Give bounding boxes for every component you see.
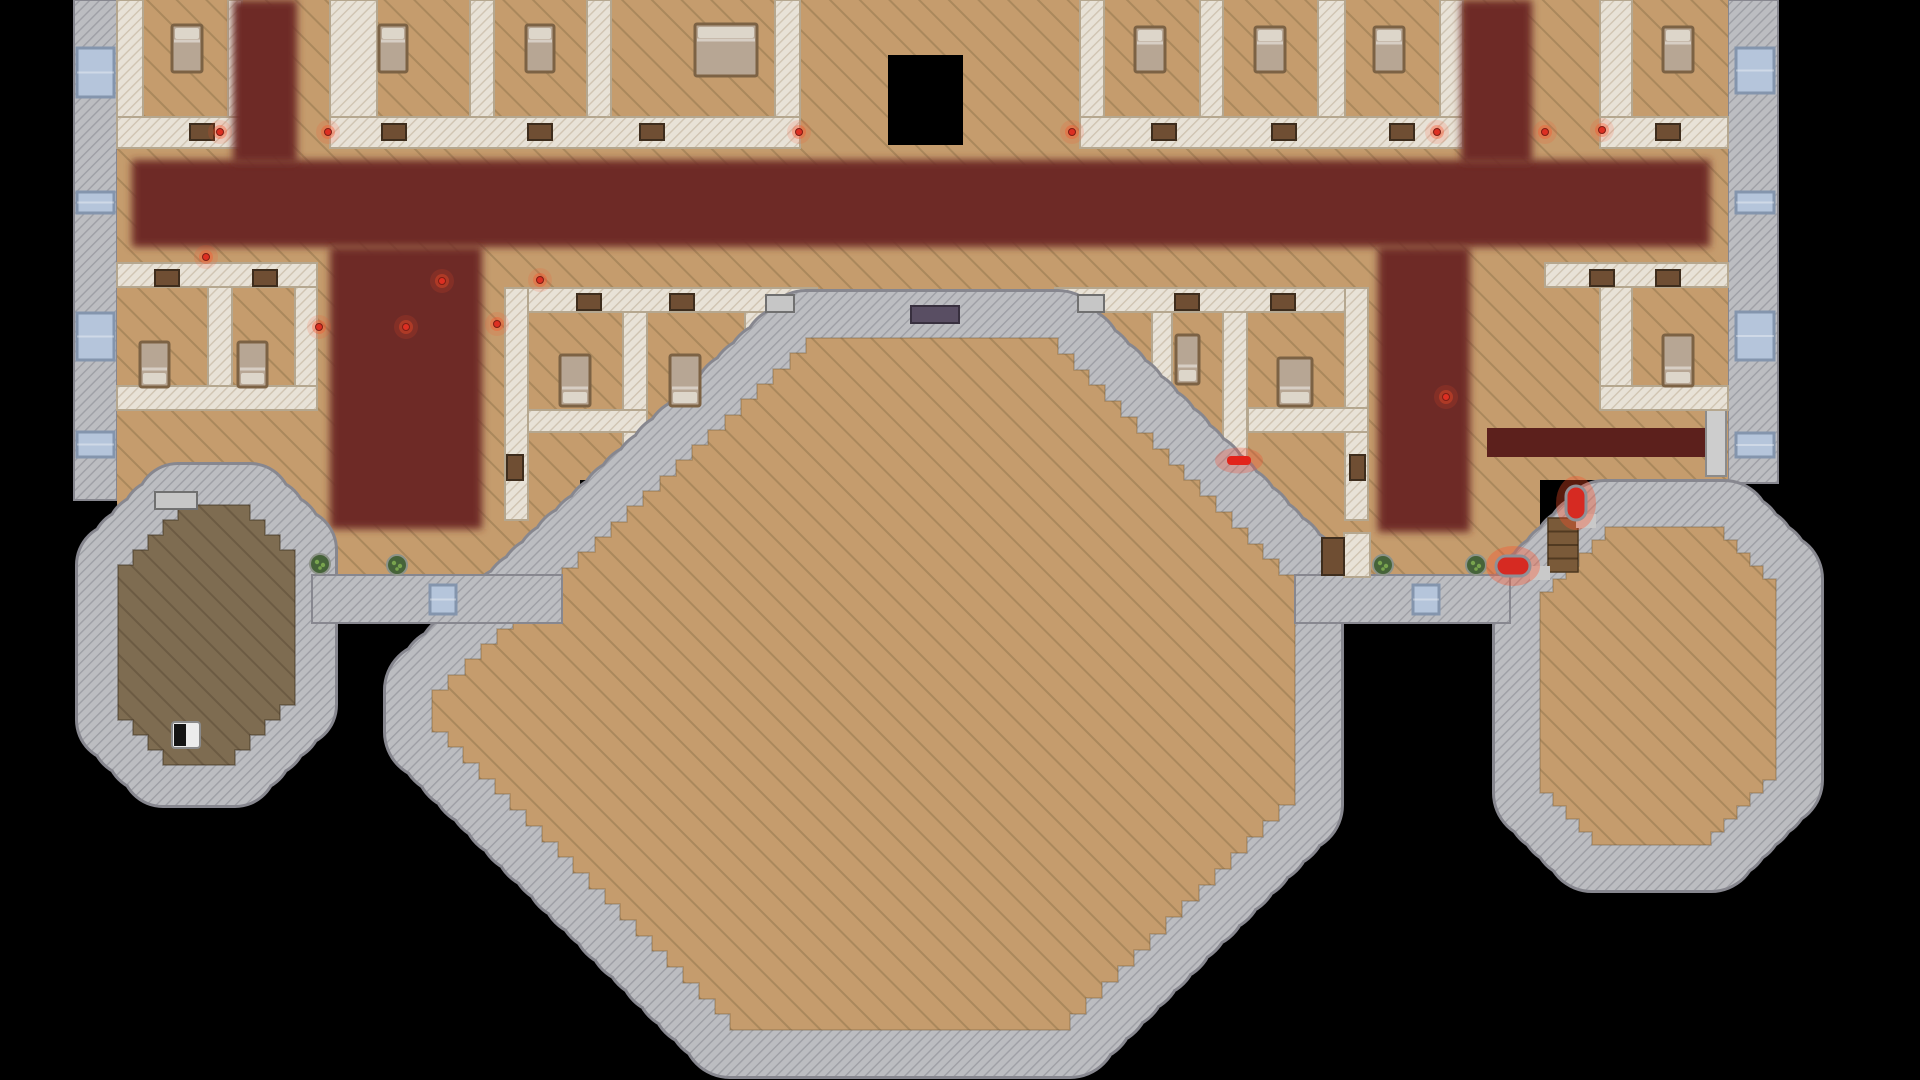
window-east-3 — [1736, 312, 1774, 360]
wall-band-right-cluster-bottom — [1600, 386, 1728, 410]
door-midright-2[interactable] — [1271, 294, 1295, 310]
south-wall-east — [1295, 575, 1510, 623]
torch-6 — [1533, 120, 1557, 144]
door-room-g2[interactable] — [1390, 124, 1414, 140]
plant-pot-4[interactable] — [1466, 555, 1486, 575]
wall-top-rooms-bc — [470, 0, 494, 120]
torch-10 — [528, 268, 552, 292]
torch-13 — [394, 315, 418, 339]
plant-pot-1[interactable] — [310, 554, 330, 574]
wall-top-rooms-g2-right — [1440, 0, 1463, 120]
wall-top-rooms-cd — [587, 0, 611, 120]
wall-band-midright-lower — [1248, 408, 1368, 432]
wall-midright-east — [1345, 288, 1368, 520]
window-east-4 — [1736, 433, 1774, 457]
bed-room-b[interactable] — [379, 25, 407, 72]
bed-midright-1[interactable] — [1176, 335, 1199, 384]
door-right-cluster-2[interactable] — [1656, 270, 1680, 286]
window-south-west — [430, 585, 456, 614]
brazier-horizontal[interactable] — [1486, 546, 1540, 586]
plant-pot-2[interactable] — [387, 555, 407, 575]
wall-band-midleft-lower — [528, 410, 647, 432]
bed-left-cluster-2[interactable] — [238, 342, 267, 387]
statue[interactable] — [1706, 410, 1726, 476]
torch-11 — [485, 312, 509, 336]
torch-14 — [1434, 385, 1458, 409]
bed-left-cluster-1[interactable] — [140, 342, 169, 387]
torch-8 — [194, 245, 218, 269]
window-west-3 — [77, 313, 114, 360]
door-room-h[interactable] — [1656, 124, 1680, 140]
bed-right-cluster[interactable] — [1663, 335, 1693, 386]
torch-3 — [787, 120, 811, 144]
window-west-2 — [77, 192, 114, 213]
carpet-south-west — [330, 247, 482, 529]
window-west-4 — [77, 432, 114, 457]
wall-top-rooms-b-left — [330, 0, 377, 120]
door-room-b[interactable] — [382, 124, 406, 140]
carpet-throne-strip — [1487, 428, 1705, 457]
door-left-cluster-2[interactable] — [253, 270, 277, 286]
torch-12 — [307, 315, 331, 339]
annex-floor — [1540, 527, 1776, 845]
wall-top-rooms-fg — [1200, 0, 1223, 120]
door-room-g[interactable] — [1272, 124, 1296, 140]
door-right-cluster-1[interactable] — [1590, 270, 1614, 286]
torch-5 — [1425, 120, 1449, 144]
carpet-north-west — [233, 0, 297, 163]
wall-top-rooms-gg2 — [1318, 0, 1345, 120]
wall-band-right-cluster-top — [1545, 263, 1728, 287]
door-left-cluster-1[interactable] — [155, 270, 179, 286]
wall-room-a-left — [117, 0, 143, 120]
colony-map[interactable] — [0, 0, 1920, 1080]
door-midright-1[interactable] — [1175, 294, 1199, 310]
torch-2 — [316, 120, 340, 144]
door-room-d[interactable] — [640, 124, 664, 140]
memorial-slab[interactable] — [172, 722, 200, 748]
door-midleft-1[interactable] — [577, 294, 601, 310]
door-midleft-side[interactable] — [507, 455, 523, 480]
bed-midright-2[interactable] — [1278, 358, 1312, 406]
unexplored-shaft — [888, 55, 963, 145]
bed-room-d-double[interactable] — [695, 24, 757, 76]
door-room-f[interactable] — [1152, 124, 1176, 140]
wall-band-left-cluster-bottom — [117, 386, 317, 410]
wall-left-cluster-mid — [208, 287, 232, 387]
torch-7 — [1590, 118, 1614, 142]
window-west-1 — [77, 48, 114, 97]
window-south-east — [1413, 585, 1439, 614]
door-midleft-stone[interactable] — [766, 295, 794, 312]
door-courtyard-east[interactable] — [1322, 538, 1344, 575]
red-item[interactable] — [1215, 448, 1263, 474]
bed-room-g2[interactable] — [1374, 27, 1404, 72]
window-east-1 — [1736, 48, 1774, 93]
carpet-south-east — [1378, 247, 1470, 532]
door-midright-stone[interactable] — [1078, 295, 1104, 312]
bed-room-f[interactable] — [1135, 27, 1165, 72]
bed-room-a[interactable] — [172, 25, 202, 72]
door-midleft-2[interactable] — [670, 294, 694, 310]
wall-stub-courtyard-east — [1344, 533, 1370, 577]
bed-midleft-2[interactable] — [670, 355, 700, 406]
wall-right-cluster-left — [1600, 287, 1632, 387]
carpet-corridor-main — [132, 160, 1710, 247]
wall-top-rooms-f-left — [1080, 0, 1104, 120]
carpet-north-east — [1461, 0, 1532, 163]
window-east-2 — [1736, 192, 1774, 213]
wall-room-h-left — [1600, 0, 1632, 120]
wall-band-left-cluster-top — [117, 263, 317, 287]
torch-1 — [208, 120, 232, 144]
bed-room-c[interactable] — [526, 25, 554, 72]
door-midright-side[interactable] — [1350, 455, 1365, 480]
torch-9 — [430, 269, 454, 293]
door-crypt[interactable] — [155, 492, 197, 509]
plant-pot-3[interactable] — [1373, 555, 1393, 575]
door-courtyard-north[interactable] — [911, 306, 959, 323]
bed-room-h[interactable] — [1663, 27, 1693, 72]
bed-room-g[interactable] — [1255, 27, 1285, 72]
door-room-c[interactable] — [528, 124, 552, 140]
map-canvas[interactable] — [0, 0, 1920, 1080]
wall-top-rooms-d-right — [775, 0, 800, 120]
brazier-vertical[interactable] — [1556, 476, 1596, 530]
bed-midleft-1[interactable] — [560, 355, 590, 406]
torch-4 — [1060, 120, 1084, 144]
